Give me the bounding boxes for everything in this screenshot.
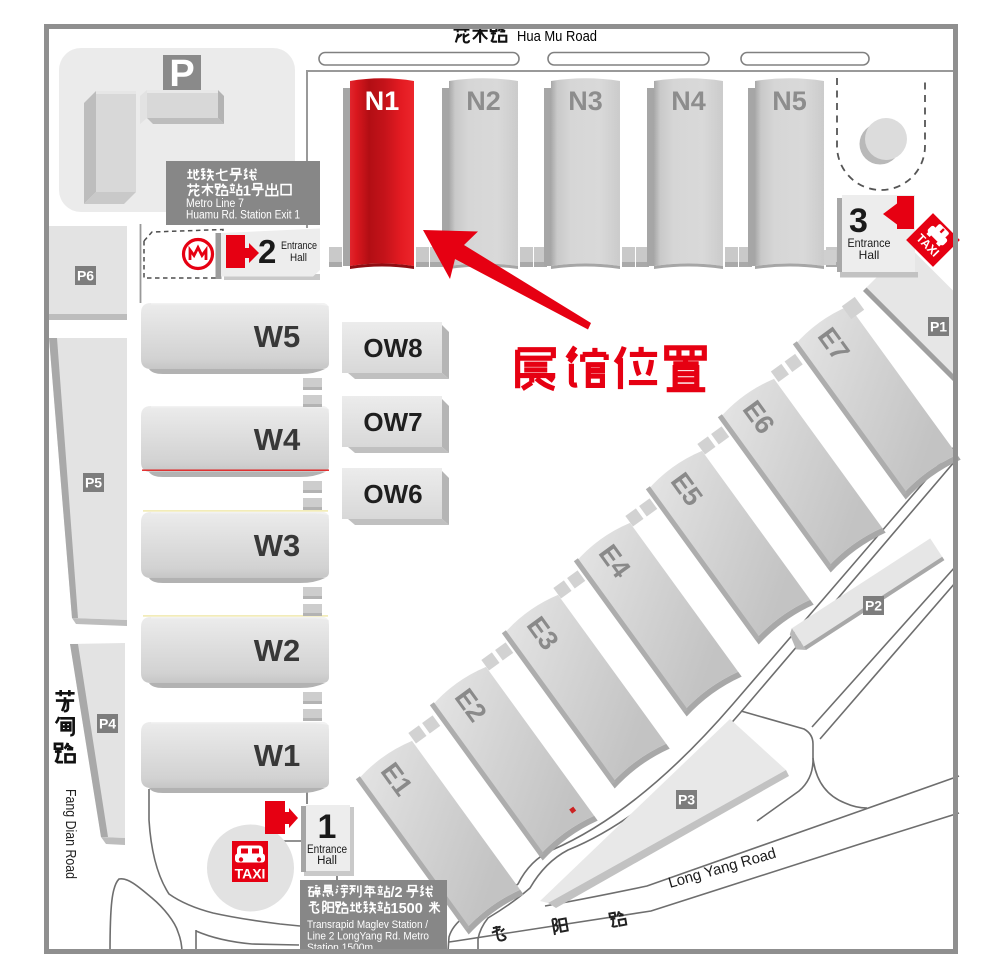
svg-text:N3: N3: [568, 86, 603, 116]
svg-text:Hall: Hall: [317, 855, 337, 867]
svg-text:1: 1: [243, 183, 251, 199]
svg-text:Entrance: Entrance: [281, 240, 317, 252]
svg-text:N4: N4: [671, 86, 706, 116]
svg-text:Metro Line 7: Metro Line 7: [186, 198, 244, 210]
svg-text:N2: N2: [466, 86, 501, 116]
svg-text:Hall: Hall: [859, 248, 880, 262]
svg-text:Fang Dian Road: Fang Dian Road: [62, 789, 78, 879]
svg-text:P2: P2: [865, 598, 882, 614]
svg-text:OW6: OW6: [363, 479, 422, 509]
svg-text:Hua Mu Road: Hua Mu Road: [517, 28, 597, 45]
svg-text:Hall: Hall: [290, 252, 307, 264]
svg-text:P: P: [169, 53, 194, 95]
svg-text:Huamu Rd. Station Exit 1: Huamu Rd. Station Exit 1: [186, 210, 300, 222]
svg-text:OW8: OW8: [363, 333, 422, 363]
svg-text:W3: W3: [254, 528, 301, 563]
svg-text:Line 2 LongYang Rd. Metro: Line 2 LongYang Rd. Metro: [307, 931, 429, 943]
svg-text:N5: N5: [772, 86, 807, 116]
svg-text:W2: W2: [254, 633, 301, 668]
svg-text:P3: P3: [678, 792, 695, 808]
svg-text:P1: P1: [930, 319, 947, 335]
svg-text:1500: 1500: [391, 901, 423, 917]
svg-text:N1: N1: [365, 86, 400, 116]
svg-text:P5: P5: [85, 475, 102, 491]
svg-text:W1: W1: [254, 738, 301, 773]
svg-text:2: 2: [258, 233, 276, 270]
svg-text:/2: /2: [391, 885, 403, 901]
svg-text:P4: P4: [99, 716, 116, 732]
svg-text:W4: W4: [254, 422, 301, 457]
svg-text:P6: P6: [77, 268, 94, 284]
svg-text:Transrapid Maglev Station /: Transrapid Maglev Station /: [307, 919, 429, 931]
svg-text:OW7: OW7: [363, 407, 422, 437]
svg-text:W5: W5: [254, 319, 301, 354]
svg-text:1: 1: [318, 808, 337, 846]
svg-text:3: 3: [849, 202, 868, 240]
svg-text:TAXI: TAXI: [235, 866, 266, 882]
